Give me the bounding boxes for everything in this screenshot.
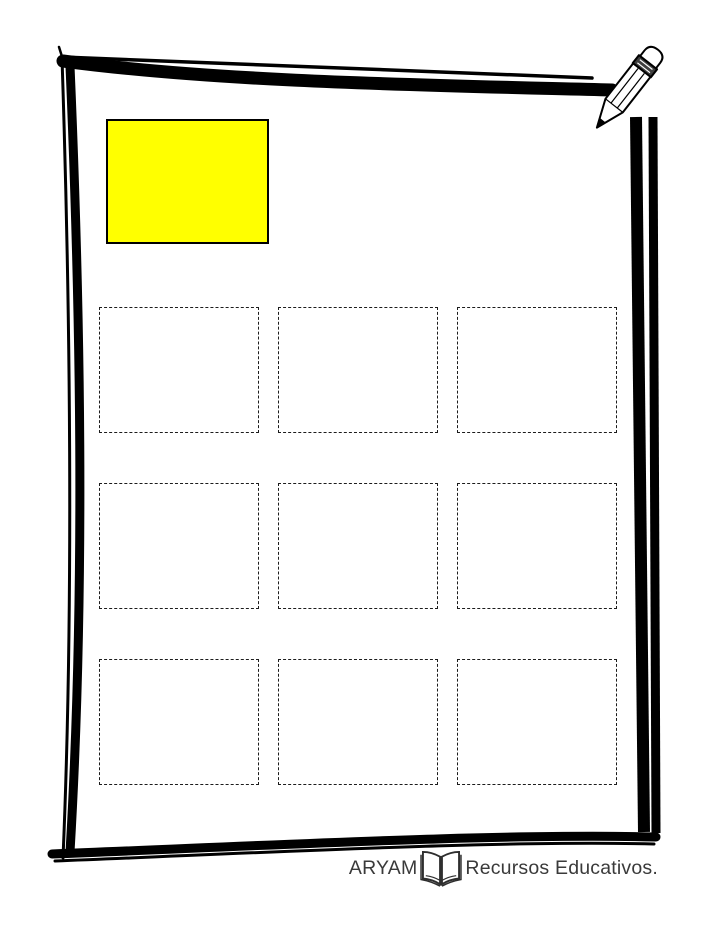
- model-box: [106, 119, 269, 244]
- pencil-icon: [588, 43, 667, 135]
- footer-text: Recursos Educativos.: [465, 857, 658, 880]
- open-book-icon: [420, 850, 462, 888]
- frame-corner-tail: [59, 47, 64, 63]
- frame-top-thin: [62, 57, 592, 78]
- answer-grid: [99, 307, 617, 785]
- worksheet-page: ARYAM Recursos Educativos.: [0, 0, 719, 925]
- answer-box[interactable]: [99, 483, 259, 609]
- footer-credit: ARYAM Recursos Educativos.: [349, 849, 658, 887]
- answer-box[interactable]: [457, 483, 617, 609]
- frame-left-thin: [62, 58, 70, 858]
- answer-box[interactable]: [99, 659, 259, 785]
- frame-right-inner-bar: [636, 117, 644, 832]
- answer-box[interactable]: [278, 659, 438, 785]
- answer-box[interactable]: [278, 483, 438, 609]
- answer-box[interactable]: [457, 307, 617, 433]
- answer-box[interactable]: [99, 307, 259, 433]
- answer-box[interactable]: [278, 307, 438, 433]
- frame-left-thick: [70, 66, 80, 852]
- frame-right-outer-bar: [653, 117, 656, 833]
- frame-top-thick: [63, 61, 612, 90]
- footer-brand: ARYAM: [349, 857, 418, 880]
- answer-box[interactable]: [457, 659, 617, 785]
